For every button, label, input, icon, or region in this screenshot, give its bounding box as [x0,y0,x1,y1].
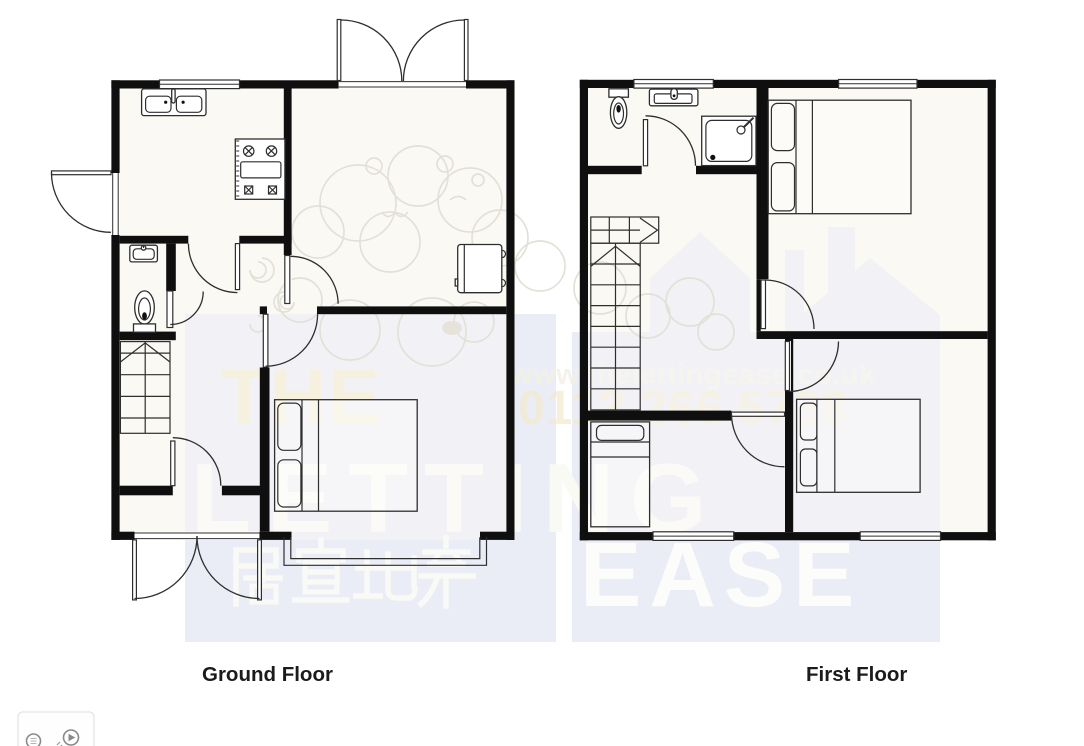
svg-text:First Floor: First Floor [806,663,907,686]
svg-text:Ground Floor: Ground Floor [202,663,333,686]
